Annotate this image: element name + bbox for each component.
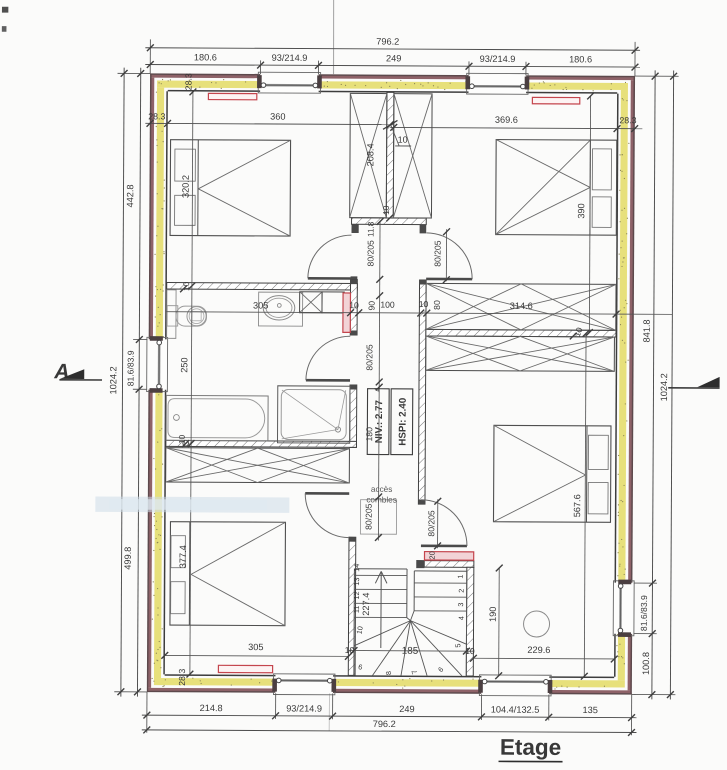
svg-text:80/205: 80/205	[364, 344, 374, 371]
svg-text:80/205: 80/205	[432, 240, 442, 267]
svg-text:80/205: 80/205	[364, 503, 374, 530]
svg-text:5: 5	[453, 643, 462, 648]
svg-text:10: 10	[398, 135, 408, 145]
svg-text:80: 80	[432, 300, 442, 310]
svg-text:11.8: 11.8	[367, 221, 376, 237]
svg-text:249: 249	[386, 53, 401, 63]
svg-text:combles: combles	[366, 495, 397, 504]
svg-text:8: 8	[384, 671, 393, 676]
svg-text:93/214.9: 93/214.9	[480, 54, 516, 64]
svg-text:13: 13	[352, 578, 361, 586]
svg-text:180.6: 180.6	[194, 52, 217, 62]
svg-text:93/214.9: 93/214.9	[286, 703, 322, 713]
svg-text:10: 10	[349, 300, 359, 310]
svg-text:135: 135	[582, 705, 597, 715]
svg-text:796.2: 796.2	[376, 37, 399, 47]
svg-text:10: 10	[381, 205, 391, 215]
svg-text:80/205: 80/205	[426, 510, 436, 537]
svg-text:90: 90	[367, 301, 377, 311]
svg-text:10: 10	[465, 646, 475, 656]
svg-text:10: 10	[354, 625, 364, 634]
svg-text:14: 14	[352, 564, 361, 572]
svg-text:227.4: 227.4	[361, 593, 371, 616]
svg-text:10: 10	[177, 434, 187, 444]
svg-text:180.6: 180.6	[569, 54, 592, 64]
svg-text:20: 20	[428, 551, 437, 559]
svg-text:390: 390	[576, 203, 586, 218]
svg-text:369.6: 369.6	[495, 115, 518, 125]
svg-text:377.4: 377.4	[178, 545, 188, 568]
svg-text:100.8: 100.8	[641, 652, 651, 675]
svg-text:320.2: 320.2	[181, 175, 191, 198]
svg-text:100: 100	[380, 300, 395, 310]
svg-text:Etage: Etage	[500, 735, 561, 760]
svg-text:3: 3	[456, 603, 465, 607]
svg-text:214.8: 214.8	[200, 703, 223, 713]
svg-text:93/214.9: 93/214.9	[272, 53, 308, 63]
svg-text:10: 10	[345, 645, 355, 655]
svg-text:28.3: 28.3	[148, 111, 165, 121]
svg-text:10: 10	[419, 299, 429, 309]
svg-text:229.6: 229.6	[527, 645, 550, 655]
svg-text:28.3: 28.3	[619, 115, 636, 125]
svg-text:28.3: 28.3	[183, 73, 193, 90]
svg-text:567.6: 567.6	[572, 494, 582, 517]
svg-text:314.6: 314.6	[510, 301, 533, 311]
svg-text:208.4: 208.4	[365, 143, 375, 166]
svg-text:190: 190	[488, 607, 498, 622]
svg-text:11: 11	[352, 606, 361, 614]
svg-text:4: 4	[373, 387, 382, 392]
svg-text:accès: accès	[371, 485, 392, 494]
svg-text:2: 2	[457, 589, 466, 593]
svg-text:841.8: 841.8	[642, 319, 652, 342]
svg-text:28.3: 28.3	[177, 669, 187, 686]
svg-text:442.8: 442.8	[125, 184, 135, 207]
svg-text:249: 249	[399, 704, 414, 714]
svg-text:796.2: 796.2	[373, 719, 396, 729]
svg-text:250: 250	[179, 357, 189, 372]
svg-text:1: 1	[456, 575, 465, 579]
svg-text:499.8: 499.8	[123, 547, 133, 570]
svg-text:305: 305	[253, 300, 268, 310]
svg-text:360: 360	[270, 112, 285, 122]
svg-text:HSPI: 2.40: HSPI: 2.40	[397, 397, 408, 446]
svg-text:4: 4	[457, 616, 466, 620]
svg-text:1024.2: 1024.2	[108, 366, 118, 394]
svg-text:12: 12	[352, 592, 361, 600]
svg-text:81.6/83.9: 81.6/83.9	[125, 350, 135, 386]
svg-text:180: 180	[364, 427, 374, 442]
svg-text:80/205: 80/205	[365, 240, 375, 267]
svg-text:104.4/132.5: 104.4/132.5	[491, 705, 540, 715]
svg-text:1024.2: 1024.2	[659, 373, 669, 401]
svg-text:185: 185	[402, 646, 419, 657]
svg-text:81.6/83.9: 81.6/83.9	[639, 595, 649, 631]
svg-text:305: 305	[248, 642, 263, 652]
